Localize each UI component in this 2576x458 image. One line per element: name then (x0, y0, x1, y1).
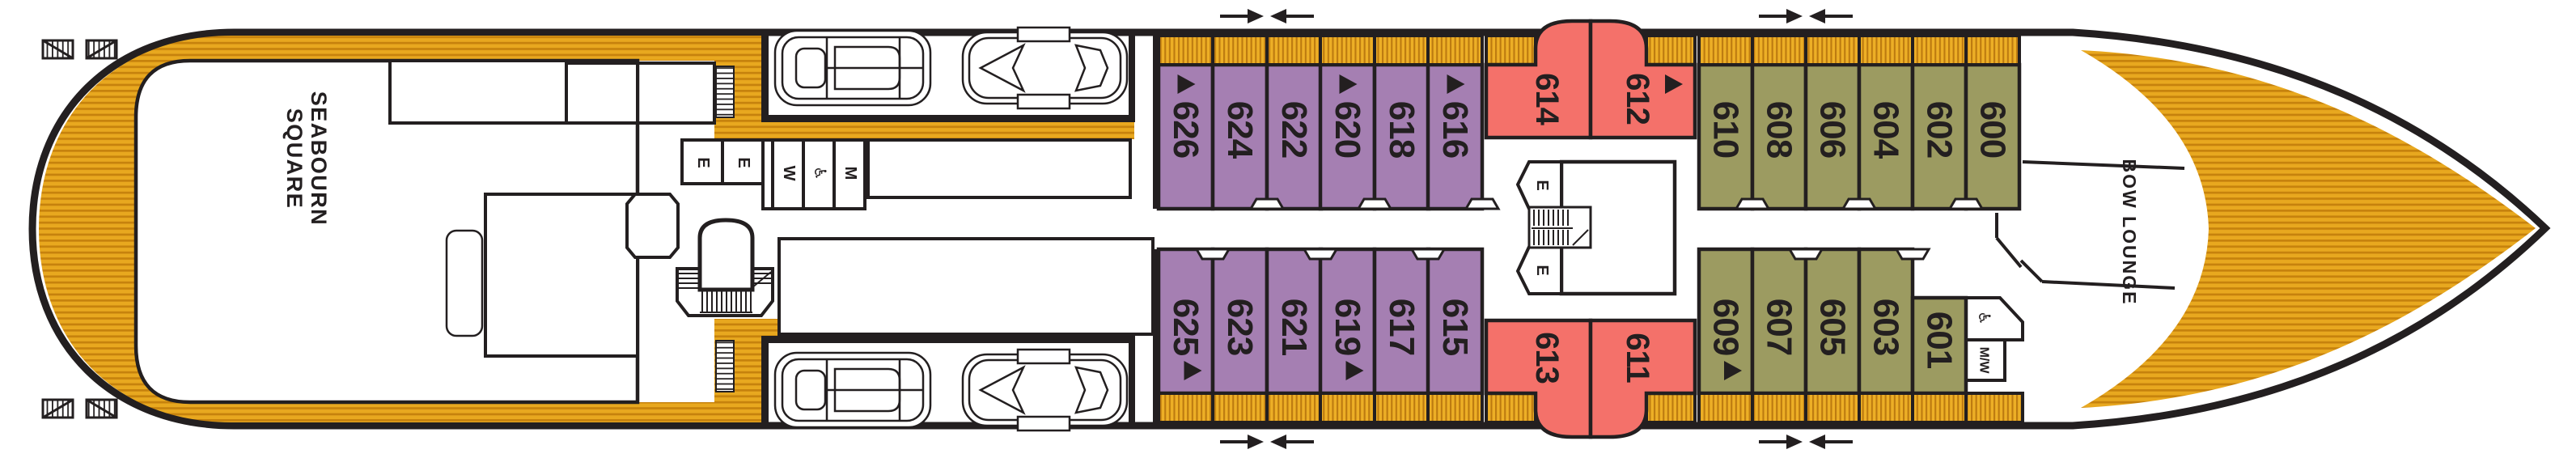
cabin-626[interactable]: 626 (1159, 36, 1213, 209)
cabin-601[interactable]: 601 (1913, 298, 1966, 422)
cabin-610[interactable]: 610 (1699, 36, 1752, 209)
deck-plan-page: E E W ♿ M (0, 0, 2576, 458)
cabin-balcony (1159, 36, 1213, 65)
cabin-balcony (1806, 393, 1859, 422)
cabin-602[interactable]: 602 (1913, 36, 1966, 209)
cabin-number: 602 (1920, 101, 1960, 158)
cabin-balcony (1428, 393, 1482, 422)
midship-stairs (1529, 207, 1591, 248)
cabin-balcony (1267, 36, 1321, 65)
cabin-balcony (1806, 36, 1859, 65)
cabin-number: 624 (1220, 101, 1260, 159)
partition-arrow-icon (1759, 435, 1853, 449)
cabin-balcony (1699, 393, 1752, 422)
cabin-number: 611 (1620, 333, 1655, 383)
cabin-balcony (1159, 393, 1213, 422)
cabin-balcony (1375, 393, 1429, 422)
door-notch (1736, 199, 1769, 209)
cabin-600[interactable]: 600 (1966, 36, 2019, 209)
door-notch (1950, 199, 1982, 209)
svg-text:SQUARE: SQUARE (282, 108, 307, 210)
cabin-607[interactable]: 607 (1752, 249, 1806, 422)
stern-lounge-label: SEABOURN SQUARE (282, 91, 331, 227)
cabin-number: 614 (1529, 73, 1565, 125)
cabin-number: 620 (1328, 101, 1367, 158)
cabin-number: 621 (1274, 299, 1314, 356)
cabin-621[interactable]: 621 (1267, 249, 1321, 422)
cabin-number: 610 (1706, 101, 1746, 158)
cabin-balcony (1428, 36, 1482, 65)
wc-men-label: M (841, 167, 859, 180)
cabin-number: 616 (1435, 101, 1475, 158)
cabin-617[interactable]: 617 (1375, 249, 1429, 422)
cabin-balcony (1913, 393, 1966, 422)
cabin-balcony (1913, 36, 1966, 65)
partition-arrow-icon (1220, 435, 1314, 449)
cabin-number: 623 (1220, 299, 1260, 355)
cabin-608[interactable]: 608 (1752, 36, 1806, 209)
cabin-number: 606 (1813, 101, 1853, 158)
cabin-balcony (1966, 36, 2019, 65)
cabin-616[interactable]: 616 (1428, 36, 1482, 209)
mw-label: M/W (1977, 347, 1991, 375)
cabin-number: 618 (1382, 101, 1421, 159)
long-room-top (868, 140, 1130, 197)
cabin-balcony (1375, 36, 1429, 65)
stairs-aft-bottom (716, 341, 734, 392)
elevator-label: E (735, 157, 752, 168)
elevator-label: E (1533, 180, 1551, 190)
cabin-number: 603 (1866, 299, 1906, 355)
cabin-balcony (1699, 36, 1752, 65)
cabin-624[interactable]: 624 (1213, 36, 1267, 209)
lifeboat-starboard (963, 350, 1127, 430)
door-notch (1358, 199, 1391, 209)
door-notch (1466, 199, 1498, 209)
cabin-balcony (1213, 393, 1267, 422)
svg-text:SEABOURN: SEABOURN (307, 91, 331, 227)
deck-plan: E E W ♿ M (0, 0, 2576, 458)
tender-boat-port (775, 31, 930, 105)
cabin-618[interactable]: 618 (1375, 36, 1429, 209)
cabin-605[interactable]: 605 (1806, 249, 1859, 422)
door-notch (1251, 199, 1283, 209)
cabin-number: 608 (1760, 101, 1799, 159)
door-notch (1843, 199, 1875, 209)
wc-women-label: W (780, 166, 798, 181)
cabin-number: 625 (1166, 299, 1205, 356)
cabin-balcony (1752, 393, 1806, 422)
cabin-615[interactable]: 615 (1428, 249, 1482, 422)
bow-lounge-label: BOW LOUNGE (2119, 159, 2140, 306)
stern-inner-room-bottom (485, 194, 638, 356)
cabin-604[interactable]: 604 (1859, 36, 1913, 209)
stern-counter (447, 231, 482, 336)
cabin-number: 612 (1620, 73, 1655, 125)
cabin-balcony (1213, 36, 1267, 65)
partition-arrow-icon (1220, 9, 1314, 23)
cabin-603[interactable]: 603 (1859, 249, 1913, 422)
cabin-622[interactable]: 622 (1267, 36, 1321, 209)
cabin-number: 607 (1760, 299, 1799, 355)
cabin-609[interactable]: 609 (1699, 249, 1752, 422)
cabin-number: 613 (1529, 332, 1565, 384)
cabin-balcony (1267, 393, 1321, 422)
partition-arrow-icon (1759, 9, 1853, 23)
cabin-number: 604 (1866, 101, 1906, 159)
cabin-number: 601 (1920, 312, 1960, 369)
door-notch (1197, 249, 1229, 259)
corridor-junction (627, 194, 678, 257)
elevator-label: E (1533, 265, 1551, 275)
lifeboat-port (963, 28, 1127, 108)
elevator-label: E (694, 157, 712, 168)
cabin-balcony (1859, 393, 1913, 422)
cabin-balcony (1859, 36, 1913, 65)
stern-inner-room-top (390, 61, 638, 123)
cabin-number: 615 (1435, 299, 1475, 356)
door-notch (1790, 249, 1822, 259)
cabin-number: 600 (1973, 101, 2013, 158)
cabin-balcony (1320, 36, 1375, 65)
door-notch (1896, 249, 1929, 259)
cabin-number: 626 (1166, 101, 1205, 158)
cabin-623[interactable]: 623 (1213, 249, 1267, 422)
wheelchair-icon: ♿ (1975, 311, 1993, 325)
cabin-620[interactable]: 620 (1320, 36, 1375, 209)
tender-boat-starboard (775, 353, 930, 427)
long-room-bottom (779, 239, 1153, 334)
cabin-606[interactable]: 606 (1806, 36, 1859, 209)
door-notch (1304, 249, 1337, 259)
cabin-number: 609 (1706, 299, 1746, 355)
cabin-number: 619 (1328, 299, 1367, 355)
cabin-balcony (1320, 393, 1375, 422)
stairs-aft-top (716, 66, 734, 117)
wheelchair-icon: ♿ (811, 166, 828, 180)
cabin-number: 605 (1813, 299, 1853, 356)
cabin-625[interactable]: 625 (1159, 249, 1213, 422)
door-notch (1412, 249, 1444, 259)
cabin-number: 622 (1274, 101, 1314, 158)
cabin-balcony (1752, 36, 1806, 65)
midship-core: E E (1518, 162, 1675, 294)
cabin-619[interactable]: 619 (1320, 249, 1375, 422)
cabin-number: 617 (1382, 299, 1421, 355)
